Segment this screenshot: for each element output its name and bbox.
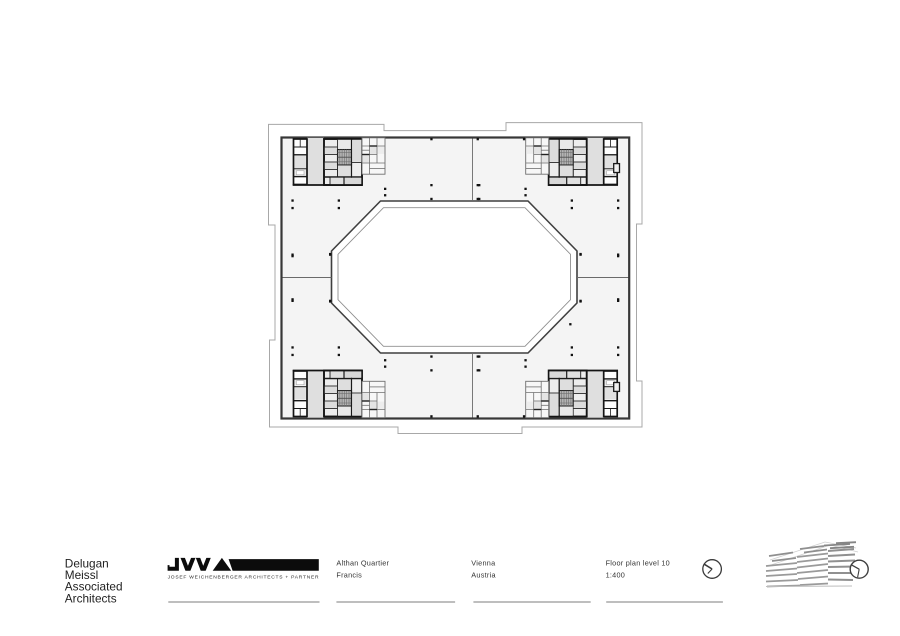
- svg-text:Floor plan level 10: Floor plan level 10: [606, 558, 670, 567]
- svg-text:Vienna: Vienna: [471, 558, 496, 567]
- svg-text:Austria: Austria: [471, 570, 496, 579]
- svg-text:Francis: Francis: [336, 570, 362, 579]
- svg-text:Architects: Architects: [65, 591, 117, 605]
- svg-text:JOSEF WEICHENBERGER ARCHITECTS: JOSEF WEICHENBERGER ARCHITECTS + PARTNER: [168, 575, 320, 581]
- svg-text:1:400: 1:400: [606, 570, 626, 579]
- svg-text:Althan Quartier: Althan Quartier: [336, 558, 389, 567]
